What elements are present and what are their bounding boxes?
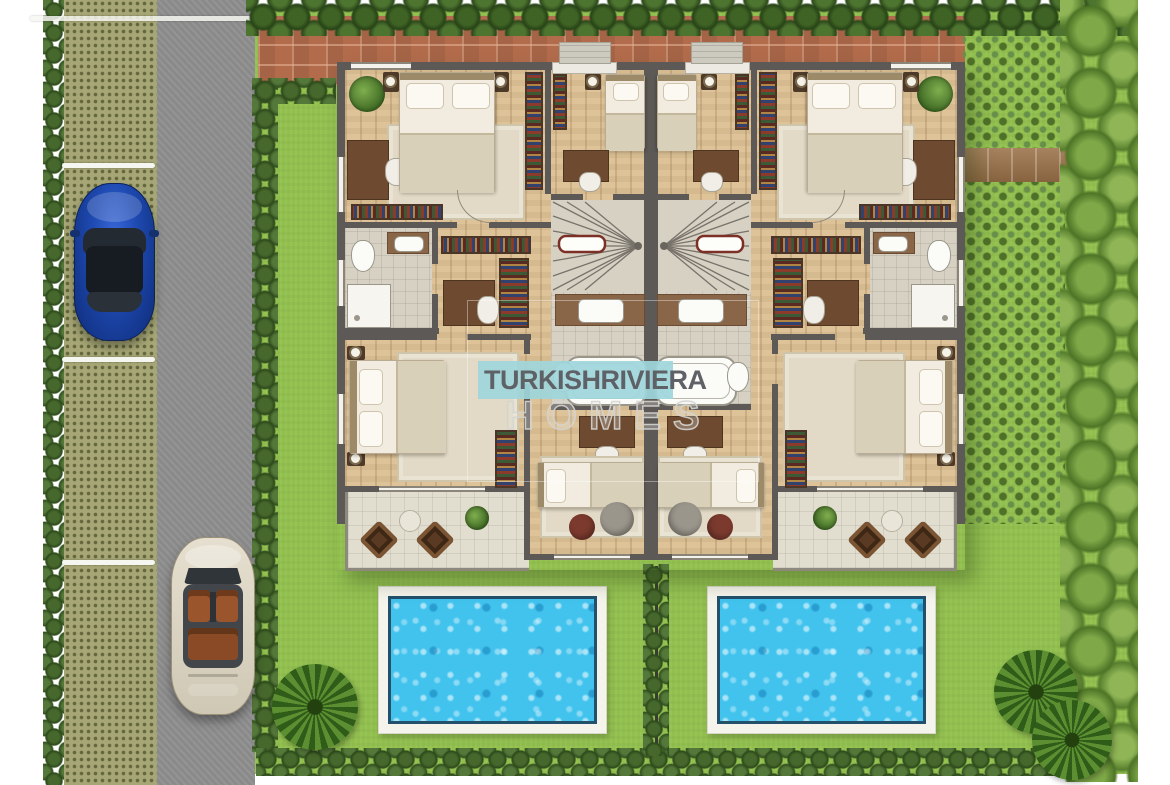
rear-seat [188, 628, 238, 660]
lamp [349, 346, 362, 359]
plant [813, 506, 837, 530]
window [672, 554, 748, 560]
front-seat [188, 590, 210, 622]
sink [394, 236, 424, 252]
nightstand [347, 452, 365, 466]
bookshelf [773, 258, 803, 328]
shrub-beds [963, 24, 1065, 524]
pouf [668, 502, 702, 536]
sink [878, 236, 908, 252]
bed-head [945, 361, 952, 453]
part [559, 236, 605, 252]
bookshelf [351, 204, 443, 220]
single-bed [605, 74, 645, 150]
w [751, 222, 813, 228]
shower [911, 284, 955, 328]
w [772, 340, 778, 354]
trunk-highlight [188, 684, 238, 696]
convertible-car [171, 537, 255, 715]
part [634, 242, 642, 250]
chair [701, 172, 723, 192]
bed-head [658, 75, 696, 81]
bookshelf [785, 430, 807, 488]
round-table [881, 510, 903, 532]
w [923, 486, 957, 492]
pool-water [388, 596, 597, 724]
vanity [387, 232, 429, 254]
blanket [400, 133, 494, 193]
bed-head [808, 73, 902, 80]
staircase [658, 200, 751, 292]
w [845, 222, 957, 228]
round-table [399, 510, 421, 532]
wooden-path [963, 148, 1071, 182]
palm-tree [272, 664, 358, 750]
watermark-homes: HOMES [505, 394, 712, 439]
divider-hedge [643, 564, 669, 756]
pillow [452, 83, 490, 109]
double-bed [399, 72, 495, 192]
w [345, 222, 457, 228]
cockpit [183, 584, 243, 668]
nightstand [383, 72, 399, 92]
parking-line [62, 357, 155, 362]
double-bed [857, 360, 953, 454]
shower [347, 284, 391, 328]
side-mirror [149, 230, 159, 237]
window [957, 394, 965, 444]
nightstand [937, 452, 955, 466]
tree-row-top [246, 0, 1132, 36]
bookshelf [771, 236, 861, 254]
pool-right [707, 586, 936, 734]
lamp [586, 75, 599, 88]
bookshelf [525, 72, 543, 190]
single-bed [657, 74, 697, 150]
hood-highlight [185, 545, 241, 569]
blanket [856, 361, 906, 453]
w [432, 228, 438, 264]
blue-car [74, 183, 155, 341]
trunk-line [188, 674, 238, 677]
part [697, 236, 743, 252]
desk [913, 140, 955, 200]
blanket [606, 113, 644, 151]
w [751, 70, 757, 194]
window [337, 394, 345, 444]
desk [347, 140, 389, 200]
nightstand [347, 346, 365, 360]
w [337, 506, 345, 524]
parking-strip [64, 0, 157, 785]
toilet [351, 240, 375, 272]
w [658, 554, 672, 560]
bookshelf [759, 72, 777, 190]
chair [803, 296, 825, 324]
w [771, 334, 835, 340]
w [530, 554, 554, 560]
pouf [707, 514, 733, 540]
window [891, 62, 951, 70]
blanket [808, 133, 902, 193]
lamp [494, 75, 507, 88]
plant [465, 506, 489, 530]
parking-line [62, 163, 155, 168]
w [864, 228, 870, 264]
window [351, 62, 411, 70]
window [379, 486, 485, 492]
plant [349, 76, 385, 112]
window [337, 260, 345, 306]
car-roof [86, 246, 143, 294]
bookshelf [735, 74, 749, 130]
site-plan-image: TURKISH RIVIERA HOMES [0, 0, 1170, 785]
console [210, 592, 216, 622]
palm-tree [1032, 700, 1112, 780]
blanket [658, 113, 696, 151]
front-seat [216, 590, 238, 622]
pillow [663, 83, 689, 101]
bed-head [606, 75, 644, 81]
w [545, 70, 551, 194]
parking-line [62, 560, 155, 565]
w [865, 334, 957, 340]
windshield [184, 568, 242, 584]
w [489, 222, 551, 228]
lamp [384, 75, 397, 88]
nightstand [585, 74, 601, 90]
nightstand [701, 74, 717, 90]
bookshelf [441, 236, 531, 254]
pillow [359, 369, 383, 405]
nightstand [903, 72, 919, 92]
nightstand [937, 346, 955, 360]
pillow [406, 83, 444, 109]
entrance-steps [691, 42, 743, 64]
w [630, 554, 644, 560]
hedge-along-road [252, 80, 278, 752]
window [957, 260, 965, 306]
window [957, 157, 965, 212]
pool-water [717, 596, 926, 724]
hood-highlight [87, 192, 142, 222]
toilet [927, 240, 951, 272]
lamp [703, 75, 716, 88]
pillow [919, 369, 943, 405]
pool-left [378, 586, 607, 734]
bookshelf [553, 74, 567, 130]
pillow [812, 83, 850, 109]
pillow [919, 411, 943, 447]
pillow [858, 83, 896, 109]
entrance-steps [559, 42, 611, 64]
w [772, 384, 778, 560]
pouf [600, 502, 634, 536]
window [554, 554, 630, 560]
chair [579, 172, 601, 192]
rear-window [87, 292, 142, 312]
pouf [569, 514, 595, 540]
tree-column-right [1060, 0, 1138, 782]
lamp [940, 346, 953, 359]
bed-head [400, 73, 494, 80]
w [748, 554, 772, 560]
vanity [873, 232, 915, 254]
nightstand [493, 72, 509, 92]
pillow [613, 83, 639, 101]
bookshelf [859, 204, 951, 220]
side-mirror [70, 230, 80, 237]
lamp [905, 75, 918, 88]
w [957, 506, 965, 524]
plant [917, 76, 953, 112]
pillow [359, 411, 383, 447]
window [817, 486, 923, 492]
double-bed [807, 72, 903, 192]
hedge-corner-patch [252, 78, 336, 104]
w [345, 486, 379, 492]
staircase [551, 200, 644, 292]
part [660, 242, 668, 250]
double-bed [349, 360, 445, 454]
blanket [396, 361, 446, 453]
w [345, 334, 437, 340]
window [337, 157, 345, 212]
bed-head [350, 361, 357, 453]
